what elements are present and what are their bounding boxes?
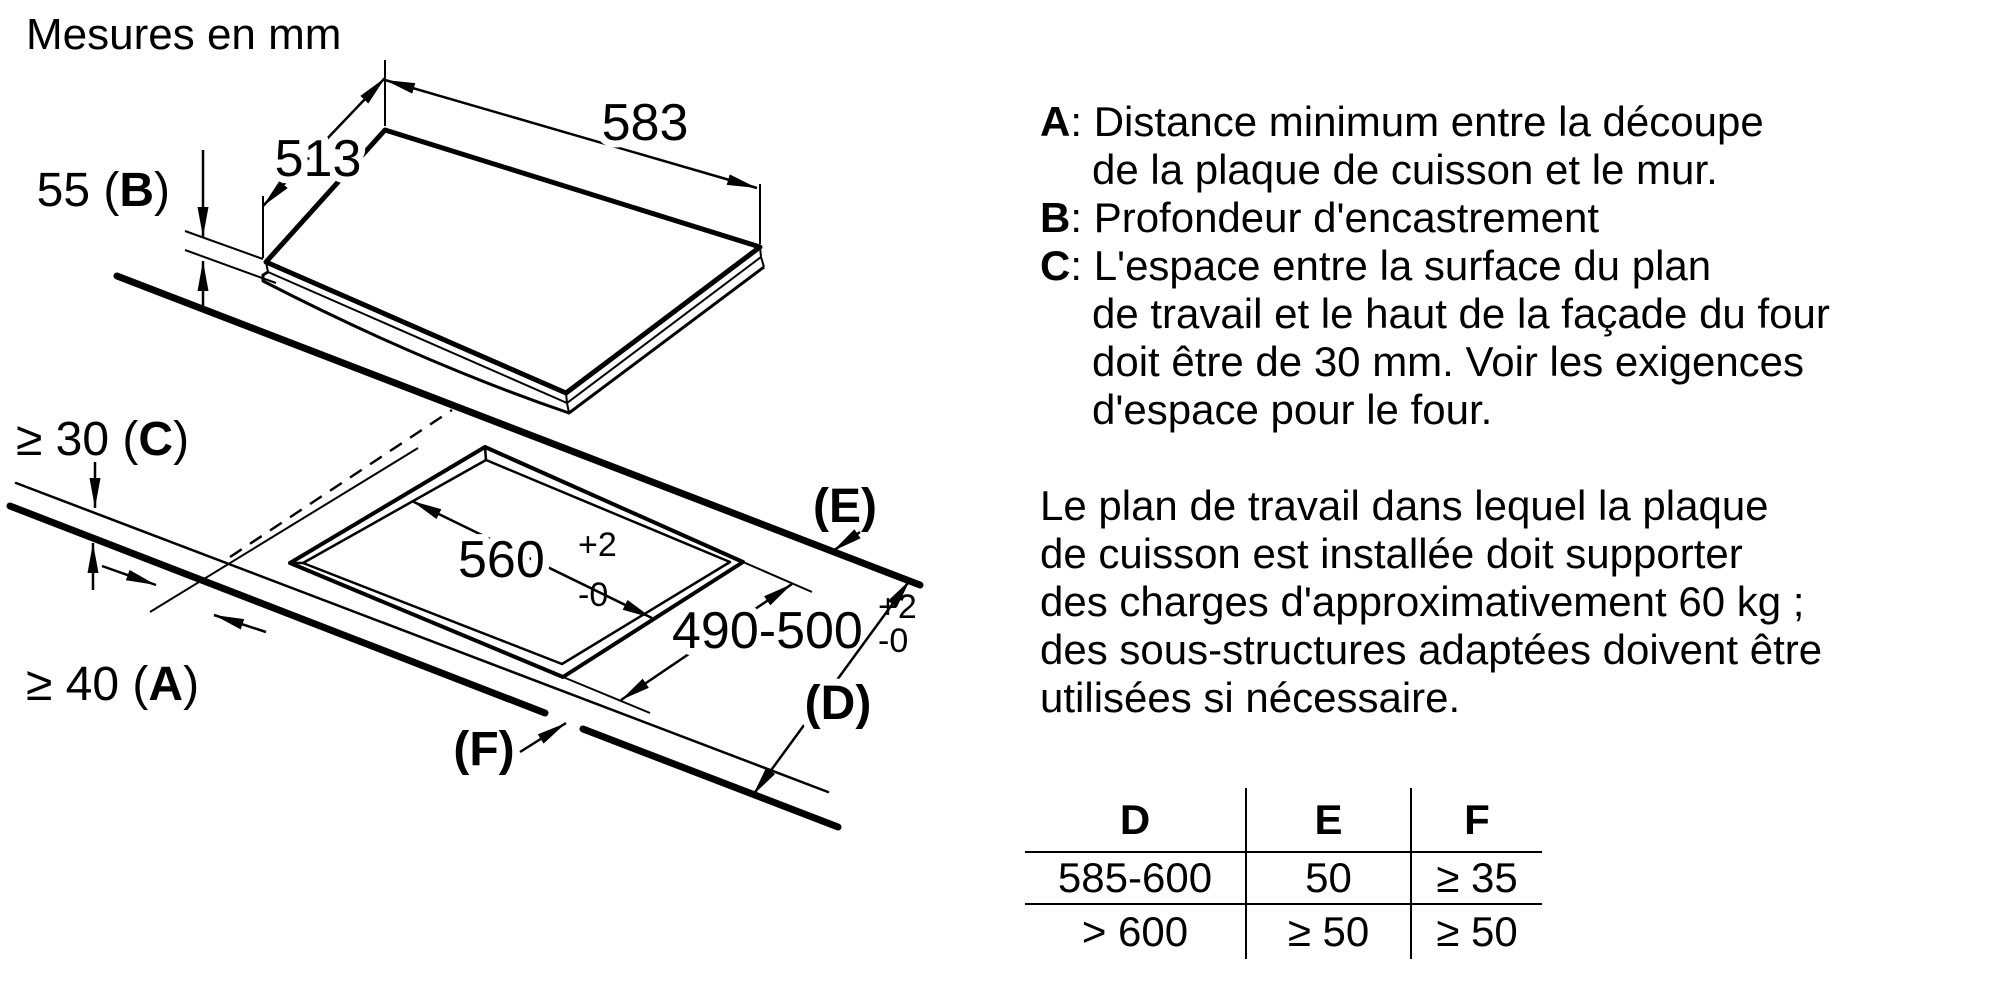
dim-490-label: 490-500 xyxy=(672,602,863,660)
dim-583-label: 583 xyxy=(602,94,689,152)
legend-line: A: Distance minimum entre la découpe xyxy=(1040,98,1830,146)
label-F-arrow xyxy=(520,723,566,752)
legend-line: d'espace pour le four. xyxy=(1040,386,1830,434)
legend-line: C: L'espace entre la surface du plan xyxy=(1040,242,1830,290)
table-cell: > 600 xyxy=(1025,903,1245,959)
dim-490-tol-plus: +2 xyxy=(878,588,917,626)
dim-40-arrow-left xyxy=(214,615,266,632)
paragraph-line: des charges d'approximativement 60 kg ; xyxy=(1040,578,1822,626)
label-E-arrow xyxy=(833,532,860,551)
dim-560-label: 560 xyxy=(458,531,545,589)
dim-40-arrow-right xyxy=(102,566,156,585)
table-cell: 585-600 xyxy=(1025,851,1245,903)
dim-490-tol-minus: -0 xyxy=(878,622,908,660)
dim-513-label: 513 xyxy=(275,130,362,188)
installation-manual-page: Mesures en mm 513 583 55 ( xyxy=(0,0,2000,1000)
load-paragraph: Le plan de travail dans lequel la plaque… xyxy=(1040,482,1822,722)
def-dimension-table: D E F 585-600 50 ≥ 35 > 600 ≥ 50 ≥ 50 xyxy=(1025,788,1542,959)
table-header-E: E xyxy=(1245,788,1412,851)
legend-line: de la plaque de cuisson et le mur. xyxy=(1040,146,1830,194)
dim-30-label: ≥ 30 (C) xyxy=(16,413,189,466)
table-cell: ≥ 50 xyxy=(1412,903,1542,959)
label-D: (D) xyxy=(805,677,872,730)
paragraph-line: utilisées si nécessaire. xyxy=(1040,674,1822,722)
legend-line: B: Profondeur d'encastrement xyxy=(1040,194,1830,242)
legend-block: A: Distance minimum entre la découpe de … xyxy=(1040,98,1830,434)
paragraph-line: de cuisson est installée doit supporter xyxy=(1040,530,1822,578)
legend-line: de travail et le haut de la façade du fo… xyxy=(1040,290,1830,338)
paragraph-line: Le plan de travail dans lequel la plaque xyxy=(1040,482,1822,530)
label-E: (E) xyxy=(813,480,877,533)
table-cell: ≥ 50 xyxy=(1245,903,1412,959)
table-header-D: D xyxy=(1025,788,1245,851)
dim-560-tol-minus: -0 xyxy=(578,576,608,614)
label-F: (F) xyxy=(453,723,514,776)
table-cell: ≥ 35 xyxy=(1412,851,1542,903)
dim-40-label: ≥ 40 (A) xyxy=(26,658,199,711)
dim-560-tol-plus: +2 xyxy=(578,526,617,564)
cutout-corner-edge-n xyxy=(485,447,486,460)
oven-front-line-right xyxy=(583,729,838,827)
legend-line: doit être de 30 mm. Voir les exigences xyxy=(1040,338,1830,386)
table-cell: 50 xyxy=(1245,851,1412,903)
table-header-F: F xyxy=(1412,788,1542,851)
paragraph-line: des sous-structures adaptées doivent êtr… xyxy=(1040,626,1822,674)
dim-55-label: 55 (B) xyxy=(37,164,170,217)
